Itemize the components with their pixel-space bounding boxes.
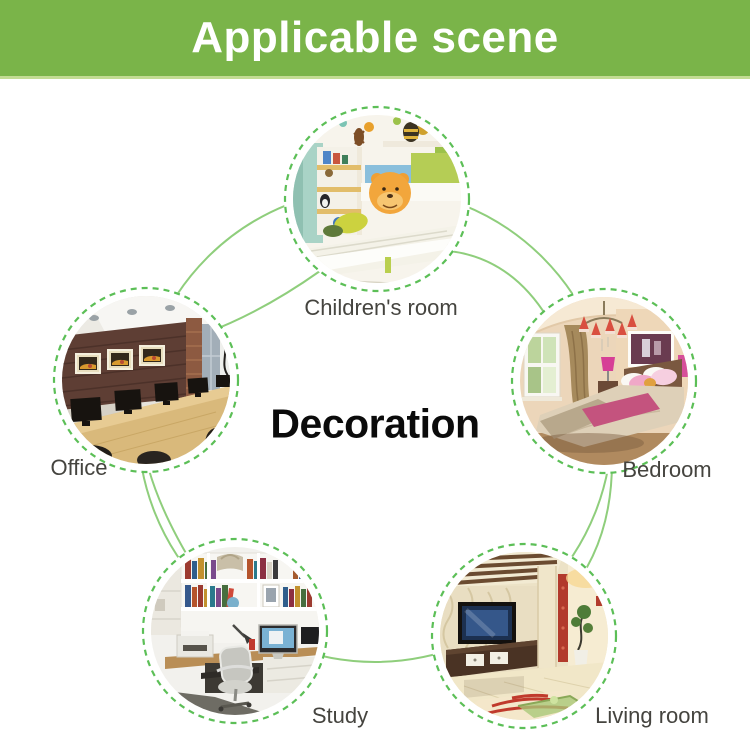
study-photo: [151, 547, 319, 715]
label-children-room: Children's room: [304, 295, 457, 321]
office-node: [53, 287, 239, 473]
living-room-node: [431, 543, 617, 729]
bedroom-photo: [520, 297, 688, 465]
children-room-photo: [293, 115, 461, 283]
diagram-graphics: [0, 0, 750, 750]
label-living-room: Living room: [595, 703, 709, 729]
study-node: [142, 538, 328, 724]
product-graphic: Applicable scene: [0, 0, 750, 750]
label-study: Study: [312, 703, 368, 729]
label-office: Office: [50, 455, 107, 481]
decoration-diagram: Decoration Children's room Bedroom Livin…: [0, 0, 750, 750]
center-label: Decoration: [270, 401, 479, 448]
bedroom-node: [511, 288, 697, 474]
living-room-photo: [440, 552, 608, 720]
label-bedroom: Bedroom: [622, 457, 711, 483]
children-room-node: [284, 106, 470, 292]
